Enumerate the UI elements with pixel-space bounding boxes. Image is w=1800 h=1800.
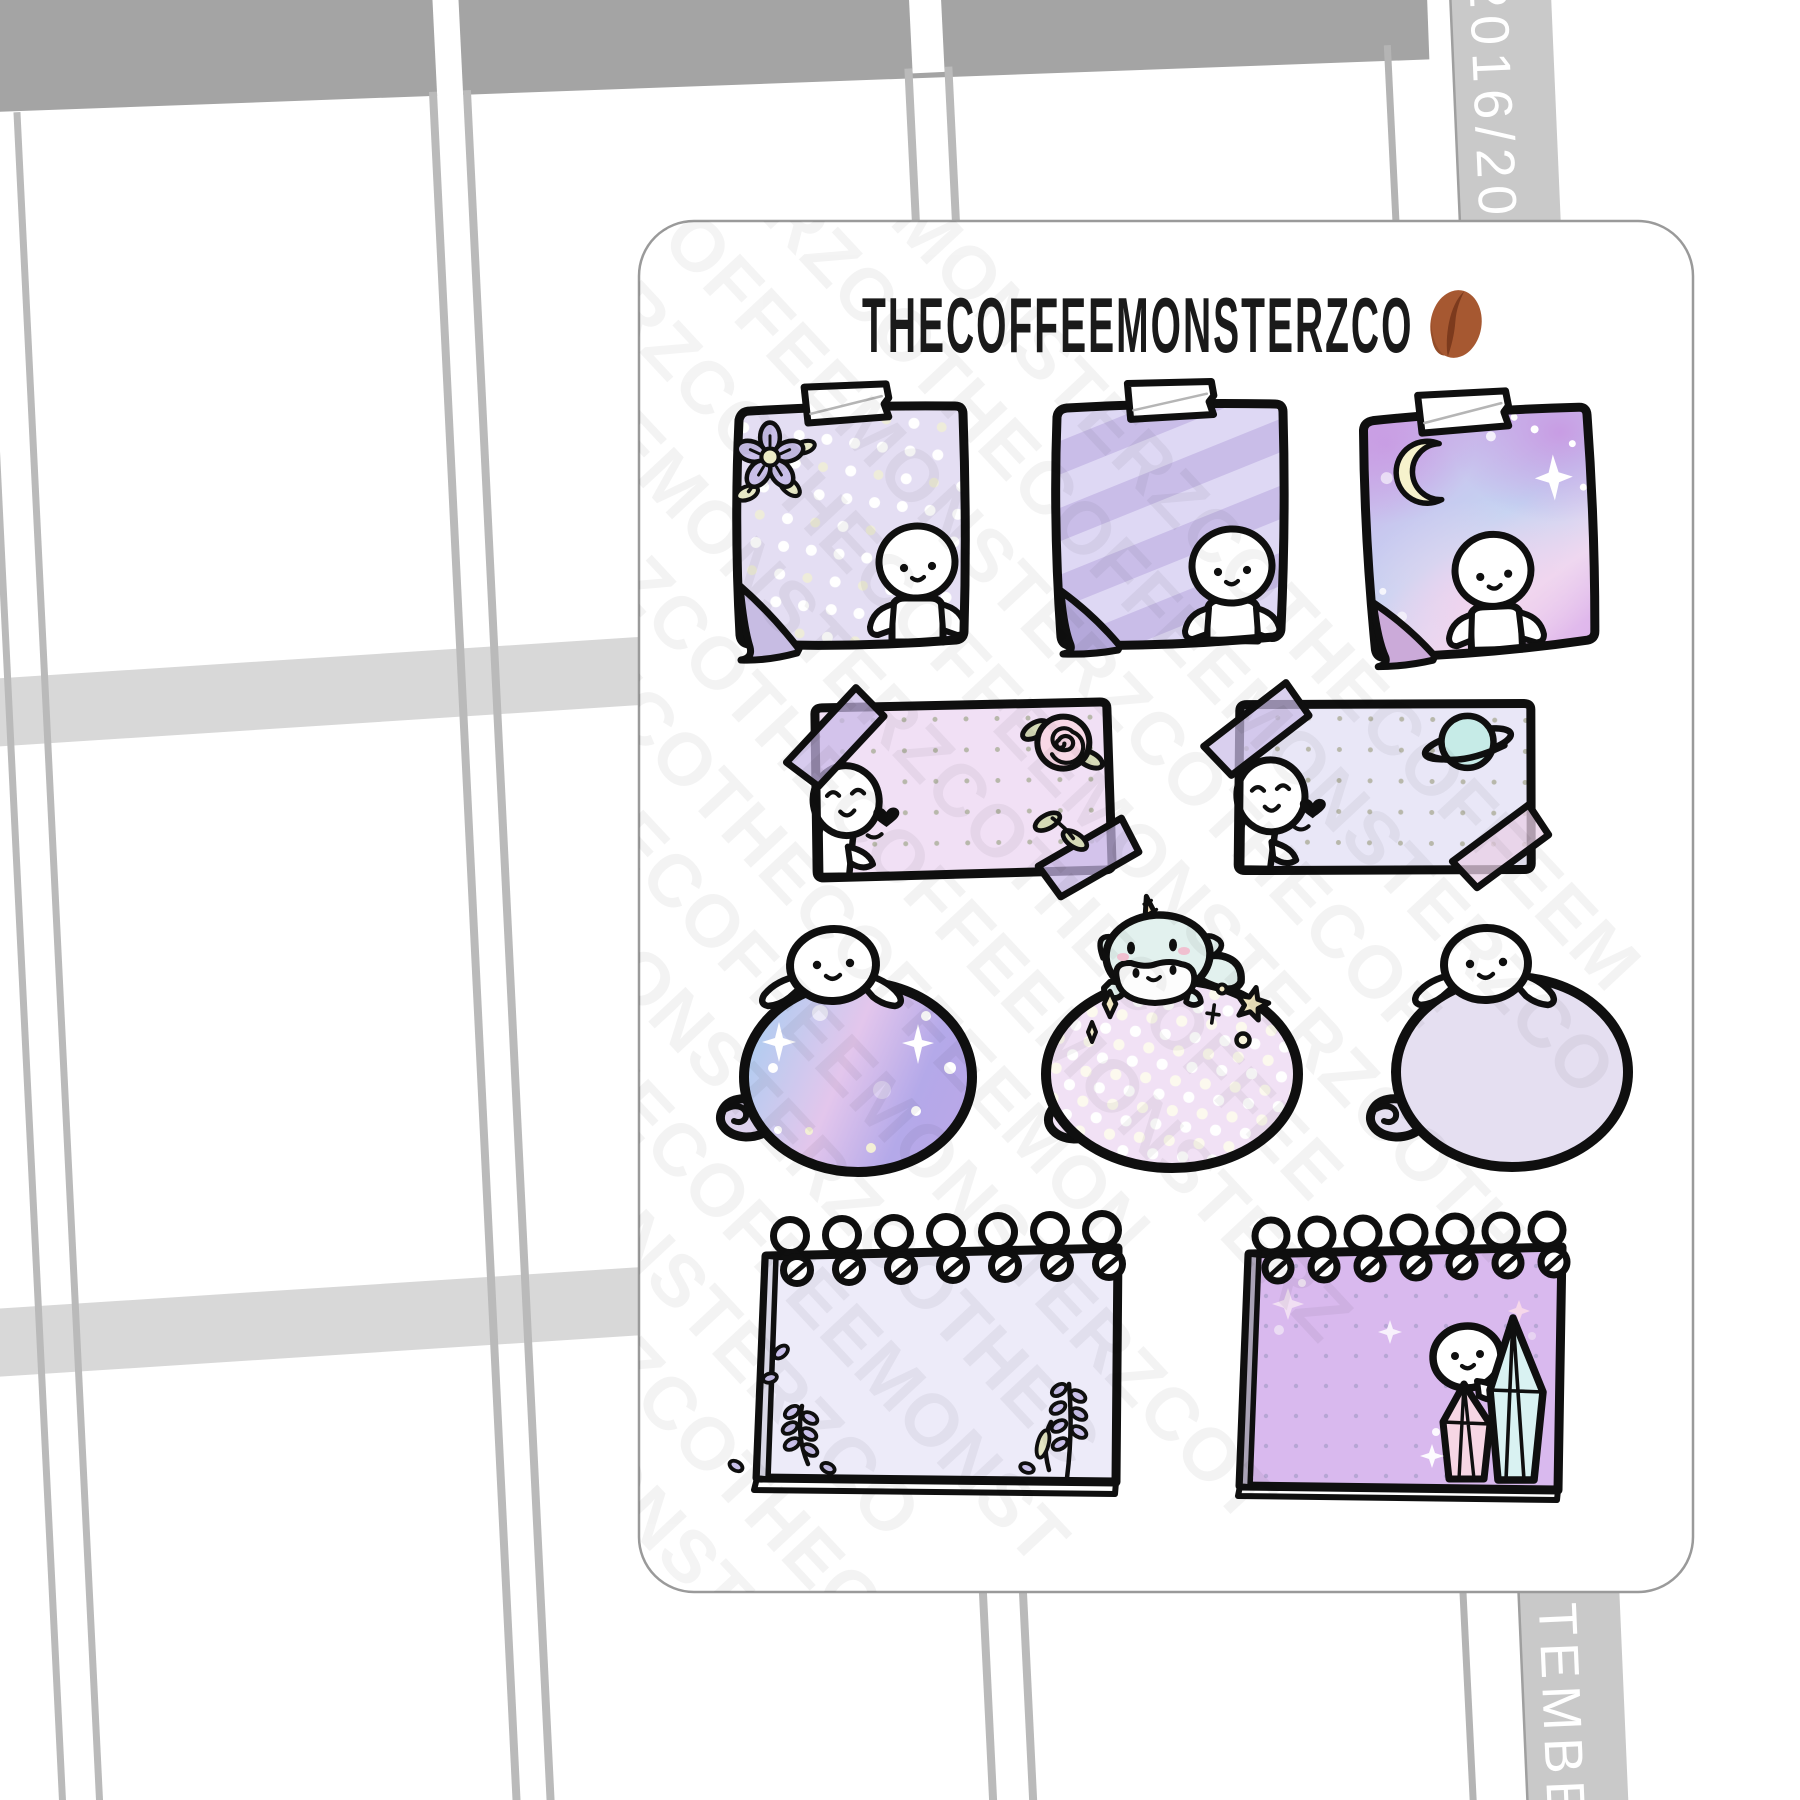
svg-text:THECOFFEEMONSTERZCO: THECOFFEEMONSTERZCO <box>862 282 1413 369</box>
